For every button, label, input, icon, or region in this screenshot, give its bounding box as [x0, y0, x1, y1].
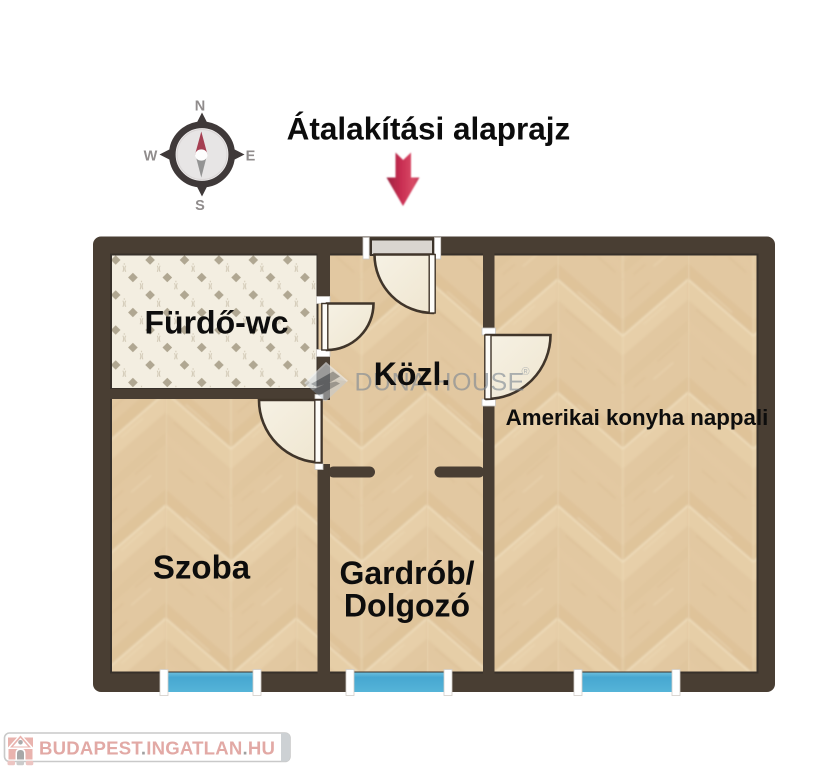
svg-text:Dolgozó: Dolgozó [344, 588, 470, 624]
svg-text:Szoba: Szoba [153, 549, 251, 586]
svg-text:BUDAPEST.INGATLAN.HU: BUDAPEST.INGATLAN.HU [39, 738, 275, 759]
svg-text:Fürdő-wc: Fürdő-wc [145, 305, 289, 341]
svg-text:N: N [195, 99, 205, 115]
svg-text:Amerikai konyha nappali: Amerikai konyha nappali [506, 405, 769, 430]
svg-text:S: S [195, 198, 205, 214]
svg-text:®: ® [522, 366, 530, 378]
svg-text:Közl.: Közl. [374, 356, 450, 392]
svg-text:E: E [246, 149, 256, 165]
svg-text:W: W [144, 149, 158, 165]
svg-text:Átalakítási alaprajz: Átalakítási alaprajz [287, 111, 571, 147]
svg-text:Gardrób/: Gardrób/ [339, 555, 474, 591]
